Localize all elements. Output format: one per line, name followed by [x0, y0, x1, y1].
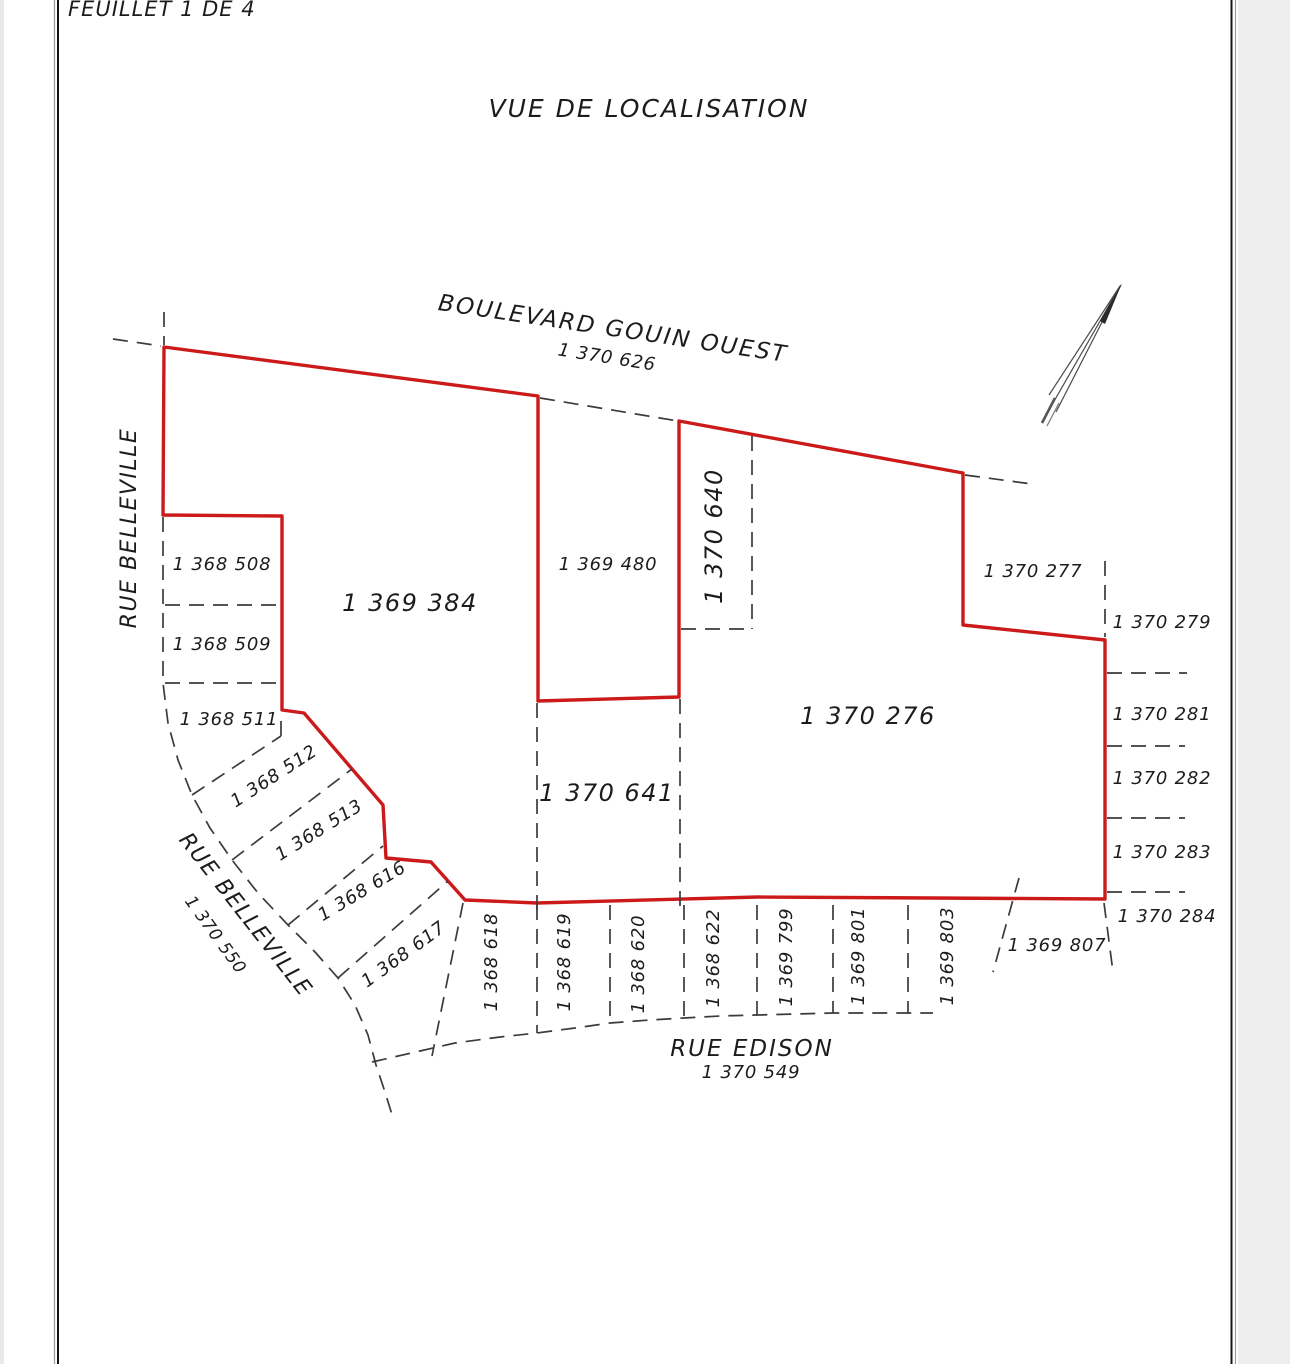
lot-label-1368619: 1 368 619 [554, 913, 575, 1012]
page-title: VUE DE LOCALISATION [488, 94, 809, 123]
lot-label-1370284: 1 370 284 [1118, 906, 1217, 927]
lot-label-1370283: 1 370 283 [1113, 842, 1212, 863]
lot-label-1368620: 1 368 620 [628, 915, 649, 1014]
lot-label-1370277: 1 370 277 [984, 561, 1083, 582]
street-label-belleville-north: RUE BELLEVILLE [117, 428, 142, 629]
street-lot-edison: 1 370 549 [702, 1062, 801, 1083]
lot-label-1370640: 1 370 640 [700, 468, 728, 604]
lot-label-1370281: 1 370 281 [1113, 704, 1212, 725]
north-arrow-icon [1042, 283, 1122, 426]
lot-label-1369799: 1 369 799 [776, 908, 797, 1007]
scan-edge-right [1238, 0, 1290, 1364]
cadastral-plan-drawing: FEUILLET 1 DE 4 VUE DE LOCALISATION BOUL… [0, 0, 1290, 1364]
lot-label-1369384: 1 369 384 [342, 589, 478, 617]
dash-edison-north-edge [372, 1013, 933, 1062]
lot-label-1368513: 1 368 513 [272, 795, 367, 865]
lot-label-1369803: 1 369 803 [937, 907, 958, 1006]
lot-label-1370641: 1 370 641 [539, 779, 675, 807]
lot-label-1369480: 1 369 480 [559, 554, 658, 575]
dash-807-west [993, 878, 1019, 972]
scan-edge-left [0, 0, 4, 1364]
lot-label-1368618: 1 368 618 [481, 913, 502, 1012]
lot-label-1369801: 1 369 801 [848, 907, 869, 1006]
lot-label-1369807: 1 369 807 [1008, 935, 1107, 956]
lot-label-1370276: 1 370 276 [800, 702, 936, 730]
lot-label-1368622: 1 368 622 [703, 909, 724, 1008]
dash-gouin-edge-center [540, 398, 678, 421]
lot-label-1370279: 1 370 279 [1113, 612, 1212, 633]
lot-label-1368509: 1 368 509 [173, 634, 272, 655]
lot-label-1370282: 1 370 282 [1113, 768, 1212, 789]
survey-plan-page: FEUILLET 1 DE 4 VUE DE LOCALISATION BOUL… [0, 0, 1290, 1364]
sheet-label: FEUILLET 1 DE 4 [68, 0, 256, 21]
street-label-edison: RUE EDISON [670, 1036, 834, 1062]
lot-label-1368617: 1 368 617 [358, 917, 450, 992]
dash-west-of-northwest-corner [113, 339, 161, 346]
lot-label-1368511: 1 368 511 [180, 709, 279, 730]
dash-gouin-edge-east [965, 475, 1032, 484]
lot-label-1368508: 1 368 508 [173, 554, 272, 575]
lot-label-1368512: 1 368 512 [227, 741, 321, 812]
subject-parcels-red-boundary [163, 347, 1105, 903]
